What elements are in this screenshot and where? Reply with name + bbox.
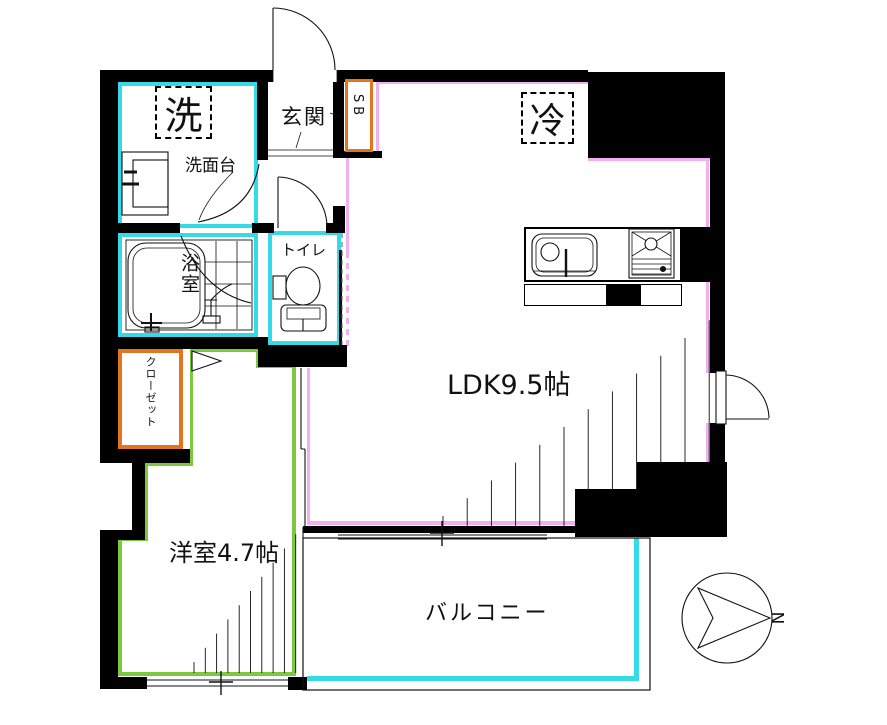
entrance-step <box>268 150 337 156</box>
kitchen-counter <box>524 227 682 282</box>
compass-north-label: N <box>766 612 786 625</box>
wall-segment <box>100 677 147 689</box>
compass-icon <box>682 573 772 663</box>
room-outline-bar <box>588 158 710 161</box>
room-outline-bar <box>307 676 639 681</box>
room-outline-bar <box>307 521 575 525</box>
ldk-side-door <box>716 371 769 424</box>
wall-segment <box>333 206 345 233</box>
room-outline-bar <box>634 538 639 680</box>
wall-segment <box>337 70 588 82</box>
room-outline-bar <box>307 368 310 525</box>
toilet-label: トイレ <box>281 239 326 260</box>
room-outline-bar <box>118 672 296 676</box>
wall-segment <box>100 70 273 82</box>
wall-segment <box>100 337 268 349</box>
wall-segment <box>333 82 344 158</box>
wall-segment <box>132 463 145 533</box>
wall-segment <box>340 151 382 158</box>
balcony-label: バルコニー <box>425 595 550 627</box>
room-outline-bar <box>145 463 148 540</box>
wall-segment <box>588 72 725 158</box>
wall-segment <box>100 70 118 455</box>
wall-segment <box>303 526 575 533</box>
room-outline-bar <box>376 81 379 153</box>
wall-segment <box>100 449 190 463</box>
wall-segment <box>682 227 710 282</box>
entrance-door-arc <box>273 8 335 70</box>
bathroom-label: 浴室 <box>176 253 203 295</box>
room-outline-bar-dashed <box>346 252 349 346</box>
wall-segment <box>575 489 637 537</box>
room-outline-bar <box>118 539 122 675</box>
western-room-label: 洋室4.7帖 <box>169 533 279 568</box>
closet-folding-door <box>192 351 221 371</box>
entrance-label: 玄関 <box>281 101 327 131</box>
toilet-door-arc <box>278 177 327 227</box>
floor-plan: 洗 冷 <box>0 0 887 725</box>
room-outline-bar <box>190 348 193 466</box>
wall-segment <box>637 462 727 537</box>
wall-segment <box>252 223 268 233</box>
washstand-label: 洗面台 <box>185 151 236 176</box>
refrigerator-label: 冷 <box>529 92 565 144</box>
wall-segment <box>710 423 725 463</box>
wall-segment <box>100 539 118 688</box>
wall-segment <box>339 250 342 345</box>
wall-segment <box>268 223 274 233</box>
shoe-box-label: SB <box>350 94 365 119</box>
wall-segment <box>257 82 268 160</box>
wall-segment <box>288 677 307 690</box>
wall-segment <box>100 223 180 233</box>
sliding-door-lines <box>301 368 305 538</box>
washing-machine-symbol: 洗 <box>155 86 212 139</box>
kitchen-counter-base <box>524 284 682 306</box>
closet-label: クローゼット <box>142 356 158 428</box>
room-outline-bar <box>292 364 296 676</box>
room-outline-bar <box>706 423 709 463</box>
room-outline-bar <box>346 157 349 252</box>
laundry-label: 洗 <box>164 85 202 140</box>
ldk-label: LDK9.5帖 <box>447 363 570 402</box>
wall-segment <box>258 345 347 367</box>
kitchen-wall-stub <box>606 284 641 306</box>
refrigerator-symbol: 冷 <box>521 92 574 144</box>
wall-segment <box>710 158 725 373</box>
